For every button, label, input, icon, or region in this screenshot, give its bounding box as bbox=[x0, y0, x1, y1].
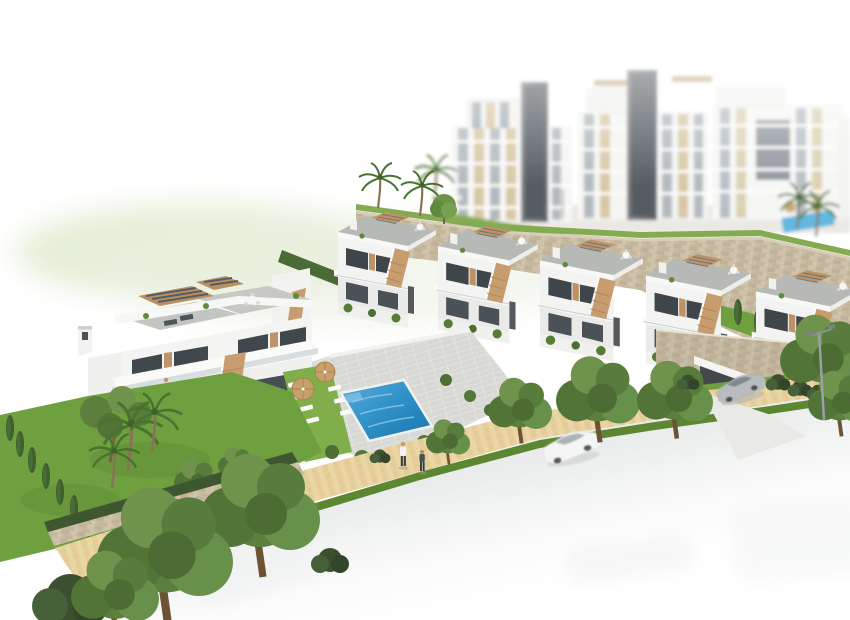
cypress-tree bbox=[16, 431, 24, 457]
cypress-tree bbox=[734, 299, 742, 325]
property-render-image: Aerial 3D rendering of a new-build Medit… bbox=[0, 0, 850, 620]
townhouse-unit bbox=[536, 239, 643, 361]
palm-tree bbox=[359, 163, 401, 208]
cypress-tree bbox=[6, 415, 14, 441]
cypress-tree bbox=[56, 479, 64, 505]
depth-wash bbox=[432, 56, 850, 186]
parasol bbox=[315, 362, 335, 382]
parasol bbox=[292, 378, 314, 400]
render-canvas: Aerial 3D rendering of a new-build Medit… bbox=[0, 0, 850, 620]
villa-chimney bbox=[78, 326, 92, 356]
faded-car bbox=[727, 494, 850, 586]
cypress-tree bbox=[42, 463, 50, 489]
cypress-tree bbox=[28, 447, 36, 473]
